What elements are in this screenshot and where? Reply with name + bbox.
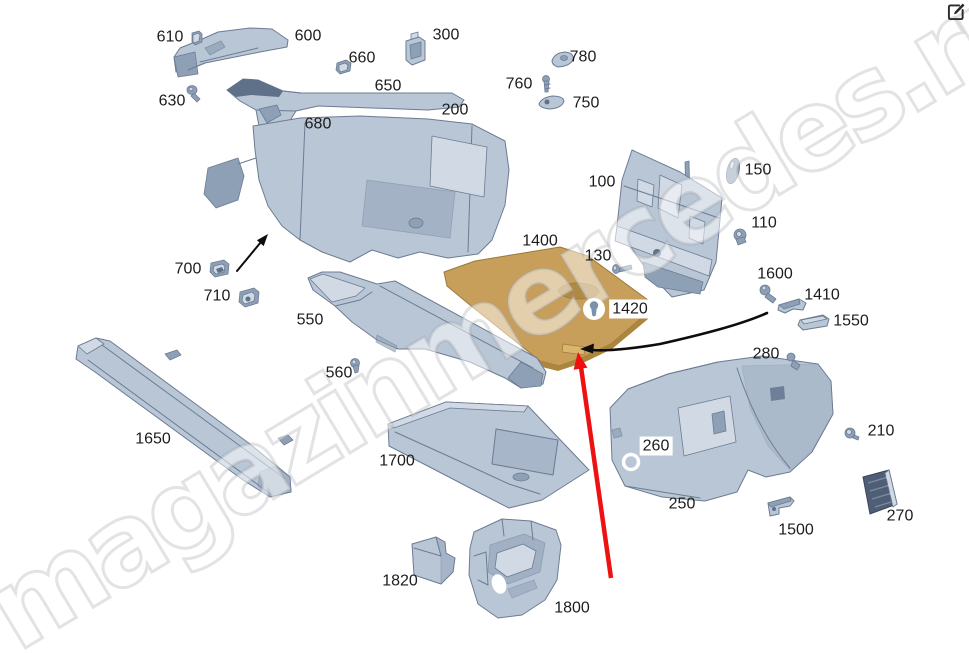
part-label-750[interactable]: 750 — [573, 94, 600, 113]
part-label-300[interactable]: 300 — [433, 26, 460, 45]
part-label-760[interactable]: 760 — [506, 75, 533, 94]
part-label-1400[interactable]: 1400 — [522, 232, 558, 251]
part-label-100[interactable]: 100 — [589, 173, 616, 192]
part-label-1820[interactable]: 1820 — [382, 572, 418, 591]
part-label-680[interactable]: 680 — [305, 115, 332, 134]
part-label-280[interactable]: 280 — [753, 345, 780, 364]
part-label-270[interactable]: 270 — [887, 507, 914, 526]
part-label-700[interactable]: 700 — [175, 260, 202, 279]
part-label-550[interactable]: 550 — [297, 311, 324, 330]
part-label-1550[interactable]: 1550 — [833, 312, 869, 331]
part-label-1410[interactable]: 1410 — [804, 286, 840, 305]
part-label-250[interactable]: 250 — [669, 495, 696, 514]
part-label-200[interactable]: 200 — [442, 101, 469, 120]
part-label-630[interactable]: 630 — [159, 92, 186, 111]
part-label-650[interactable]: 650 — [375, 77, 402, 96]
part-label-610[interactable]: 610 — [157, 28, 184, 47]
part-label-150[interactable]: 150 — [745, 161, 772, 180]
part-label-130[interactable]: 130 — [585, 247, 612, 266]
labels-layer: 6106006603006306506802007807607501001501… — [0, 0, 969, 653]
edit-icon[interactable] — [947, 3, 965, 21]
part-label-710[interactable]: 710 — [204, 287, 231, 306]
part-label-660[interactable]: 660 — [349, 49, 376, 68]
part-label-1650[interactable]: 1650 — [135, 430, 171, 449]
part-label-210[interactable]: 210 — [868, 422, 895, 441]
part-label-1500[interactable]: 1500 — [778, 521, 814, 540]
part-label-110[interactable]: 110 — [751, 214, 777, 233]
parts-diagram: magazinmercedes.ru 610600660300630650680… — [0, 0, 969, 653]
part-label-1800[interactable]: 1800 — [554, 599, 590, 618]
part-label-780[interactable]: 780 — [570, 48, 597, 67]
part-label-560[interactable]: 560 — [326, 364, 353, 383]
part-label-260[interactable]: 260 — [640, 437, 673, 456]
part-label-1700[interactable]: 1700 — [379, 452, 415, 471]
part-label-1420[interactable]: 1420 — [609, 300, 651, 319]
part-label-600[interactable]: 600 — [295, 27, 322, 46]
part-label-1600[interactable]: 1600 — [757, 265, 793, 284]
